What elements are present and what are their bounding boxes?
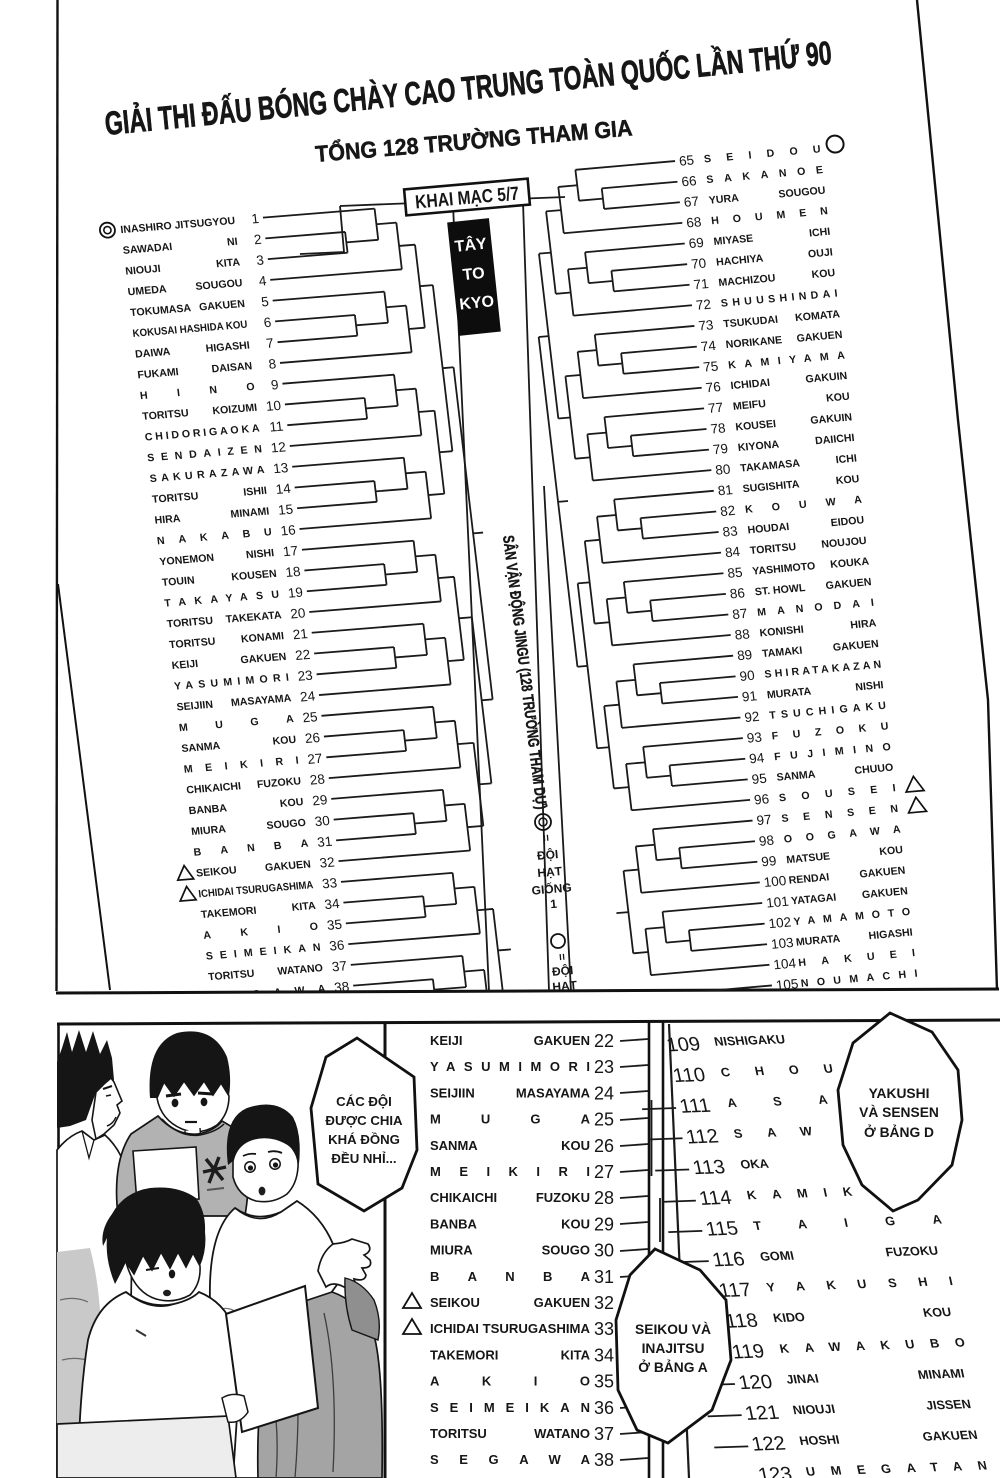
svg-text:110: 110 (671, 1064, 707, 1087)
svg-text:ICHIDAI TSURUGASHIMA: ICHIDAI TSURUGASHIMA (430, 1321, 591, 1336)
svg-text:31: 31 (316, 834, 333, 850)
svg-text:82: 82 (719, 503, 736, 519)
svg-text:GAKUEN: GAKUEN (534, 1295, 590, 1310)
svg-text:25: 25 (302, 709, 319, 725)
svg-text:HIRA: HIRA (154, 513, 182, 527)
svg-text:KIDO: KIDO (772, 1310, 807, 1325)
svg-text:37: 37 (594, 1424, 614, 1444)
svg-text:30: 30 (314, 813, 331, 829)
svg-text:11: 11 (269, 419, 285, 435)
svg-text:15: 15 (277, 502, 294, 518)
svg-text:114: 114 (697, 1187, 733, 1210)
svg-text:KOU: KOU (561, 1216, 590, 1231)
svg-text:KITA: KITA (215, 256, 241, 270)
svg-text:34: 34 (594, 1345, 614, 1365)
svg-text:35: 35 (594, 1372, 614, 1392)
svg-text:GOMI: GOMI (759, 1249, 795, 1264)
svg-text:100: 100 (763, 873, 787, 890)
svg-text:ĐỘI: ĐỘI (551, 962, 574, 979)
svg-text:79: 79 (712, 441, 729, 457)
svg-text:HIRA: HIRA (850, 617, 878, 631)
svg-text:20: 20 (289, 605, 306, 621)
svg-text:KITA: KITA (291, 900, 317, 914)
svg-text:TORITSU: TORITSU (430, 1426, 487, 1441)
svg-text:92: 92 (744, 709, 761, 725)
svg-text:KOU: KOU (922, 1305, 953, 1320)
svg-text:ISHII: ISHII (243, 485, 268, 499)
svg-text:76: 76 (705, 379, 722, 395)
svg-text:93: 93 (746, 730, 763, 746)
svg-text:38: 38 (594, 1450, 614, 1470)
svg-text:68: 68 (685, 214, 702, 230)
svg-text:12: 12 (270, 439, 287, 455)
svg-text:17: 17 (282, 543, 299, 559)
svg-text:27: 27 (594, 1162, 614, 1182)
svg-text:65: 65 (678, 152, 695, 168)
svg-text:87: 87 (731, 606, 748, 622)
svg-text:KOU: KOU (272, 734, 297, 748)
svg-text:Ở BẢNG A: Ở BẢNG A (638, 1358, 708, 1375)
svg-text:22: 22 (294, 647, 311, 663)
svg-text:KEIJI: KEIJI (171, 658, 199, 672)
svg-text:HOSHI: HOSHI (798, 1433, 841, 1448)
svg-text:81: 81 (717, 482, 734, 498)
svg-text:119: 119 (730, 1341, 766, 1364)
svg-text:Ở BẢNG D: Ở BẢNG D (864, 1123, 934, 1140)
svg-text:28: 28 (309, 771, 326, 787)
svg-text:NISHIGAKU: NISHIGAKU (713, 1033, 787, 1049)
svg-text:TO: TO (462, 265, 486, 284)
svg-text:KOU: KOU (811, 267, 836, 281)
svg-text:35: 35 (326, 917, 343, 933)
svg-text:105: 105 (775, 976, 799, 993)
svg-text:95: 95 (751, 771, 768, 787)
svg-text:80: 80 (715, 462, 732, 478)
svg-text:72: 72 (695, 297, 712, 313)
svg-text:77: 77 (707, 400, 724, 416)
svg-text:OKA: OKA (739, 1157, 770, 1172)
svg-text:113: 113 (691, 1156, 727, 1179)
svg-text:32: 32 (594, 1293, 614, 1313)
svg-text:23: 23 (297, 668, 314, 684)
svg-text:31: 31 (594, 1267, 614, 1287)
svg-text:97: 97 (756, 812, 773, 828)
svg-text:KOU: KOU (825, 391, 850, 405)
svg-text:SOUGO: SOUGO (542, 1243, 590, 1258)
svg-text:BANBA: BANBA (430, 1216, 478, 1231)
svg-text:71: 71 (693, 276, 710, 292)
svg-text:66: 66 (681, 173, 698, 189)
svg-text:101: 101 (765, 894, 789, 911)
svg-text:KOU: KOU (879, 844, 904, 858)
svg-text:29: 29 (594, 1214, 614, 1234)
svg-text:18: 18 (285, 564, 302, 580)
svg-text:70: 70 (690, 256, 707, 272)
svg-text:83: 83 (722, 523, 739, 539)
svg-text:10: 10 (265, 398, 282, 414)
svg-text:121: 121 (743, 1402, 781, 1425)
svg-text:74: 74 (700, 338, 717, 354)
svg-text:14: 14 (275, 481, 292, 497)
svg-text:JINAI: JINAI (785, 1372, 820, 1387)
svg-text:37: 37 (331, 958, 348, 974)
svg-text:ICHI: ICHI (835, 452, 858, 466)
svg-text:CÁC ĐỘI: CÁC ĐỘI (336, 1094, 392, 1109)
svg-text:KOU: KOU (561, 1138, 590, 1153)
svg-text:84: 84 (724, 544, 741, 560)
svg-text:116: 116 (710, 1249, 746, 1272)
svg-text:111: 111 (678, 1095, 713, 1118)
svg-text:27: 27 (307, 751, 324, 767)
svg-text:KHÁ ĐỒNG: KHÁ ĐỒNG (328, 1132, 400, 1147)
svg-text:JISSEN: JISSEN (925, 1397, 973, 1412)
svg-text:75: 75 (702, 359, 719, 375)
svg-text:ĐỘI: ĐỘI (536, 846, 559, 863)
svg-text:90: 90 (739, 668, 756, 684)
svg-text:=: = (539, 834, 554, 842)
svg-text:NISHI: NISHI (855, 679, 885, 693)
svg-text:91: 91 (741, 688, 758, 704)
svg-text:24: 24 (299, 688, 316, 704)
svg-text:ICHI: ICHI (808, 226, 831, 240)
svg-text:69: 69 (688, 235, 705, 251)
svg-text:SEIKOU VÀ: SEIKOU VÀ (635, 1321, 711, 1337)
svg-text:NI: NI (226, 236, 238, 249)
svg-text:32: 32 (319, 854, 336, 870)
svg-text:26: 26 (594, 1136, 614, 1156)
svg-text:36: 36 (329, 938, 346, 954)
svg-text:25: 25 (594, 1110, 614, 1130)
svg-text:KYO: KYO (459, 293, 495, 314)
svg-text:ĐỀU NHỈ...: ĐỀU NHỈ... (331, 1151, 396, 1166)
svg-text:GAKUEN: GAKUEN (534, 1033, 590, 1048)
svg-text:73: 73 (698, 317, 715, 333)
svg-text:22: 22 (594, 1031, 614, 1051)
svg-text:KEIJI: KEIJI (430, 1033, 463, 1048)
svg-text:102: 102 (768, 914, 792, 931)
svg-text:19: 19 (287, 585, 304, 601)
svg-text:21: 21 (292, 626, 309, 642)
svg-text:28: 28 (594, 1188, 614, 1208)
svg-text:WATANO: WATANO (534, 1426, 590, 1441)
svg-text:85: 85 (727, 565, 744, 581)
svg-text:GAKUEN: GAKUEN (921, 1428, 978, 1444)
svg-text:MINAMI: MINAMI (917, 1367, 966, 1382)
svg-text:34: 34 (324, 896, 341, 912)
svg-text:78: 78 (710, 420, 727, 436)
svg-text:23: 23 (594, 1057, 614, 1077)
svg-text:MASAYAMA: MASAYAMA (516, 1085, 591, 1100)
svg-text:67: 67 (683, 194, 700, 210)
svg-text:YAKUSHI: YAKUSHI (869, 1086, 930, 1101)
svg-text:TAKEMORI: TAKEMORI (430, 1347, 498, 1362)
svg-text:SEIMEIKAN: SEIMEIKAN (430, 1400, 590, 1415)
svg-text:120: 120 (737, 1371, 775, 1394)
svg-text:=: = (555, 953, 570, 961)
svg-text:30: 30 (594, 1241, 614, 1261)
svg-text:88: 88 (734, 626, 751, 642)
svg-text:KOU: KOU (279, 796, 304, 810)
svg-text:13: 13 (272, 460, 289, 476)
svg-text:33: 33 (321, 875, 338, 891)
svg-text:24: 24 (594, 1083, 614, 1103)
svg-text:SEIJIIN: SEIJIIN (430, 1085, 475, 1100)
svg-text:HẠT: HẠT (537, 864, 563, 880)
svg-text:KITA: KITA (561, 1347, 591, 1362)
svg-text:36: 36 (594, 1398, 614, 1418)
svg-text:109: 109 (664, 1034, 702, 1057)
svg-text:NIOUJI: NIOUJI (791, 1402, 836, 1417)
svg-text:OUJI: OUJI (807, 246, 833, 260)
svg-text:CHIKAICHI: CHIKAICHI (430, 1190, 497, 1205)
svg-text:FUZOKU: FUZOKU (884, 1244, 939, 1260)
svg-text:86: 86 (729, 585, 746, 601)
svg-text:33: 33 (594, 1319, 614, 1339)
svg-text:89: 89 (736, 647, 753, 663)
svg-text:26: 26 (304, 730, 321, 746)
svg-text:FUZOKU: FUZOKU (536, 1190, 590, 1205)
svg-text:MIURA: MIURA (430, 1243, 473, 1258)
svg-text:KOU: KOU (835, 473, 860, 487)
svg-text:16: 16 (280, 522, 297, 538)
svg-text:96: 96 (753, 791, 770, 807)
svg-text:103: 103 (770, 935, 794, 952)
svg-text:115: 115 (704, 1218, 740, 1241)
svg-text:29: 29 (311, 792, 328, 808)
svg-text:VÀ SENSEN: VÀ SENSEN (859, 1104, 939, 1120)
svg-text:NISHI: NISHI (245, 547, 275, 561)
svg-text:122: 122 (750, 1433, 788, 1456)
svg-text:SANMA: SANMA (430, 1138, 478, 1153)
svg-text:99: 99 (761, 853, 778, 869)
svg-text:98: 98 (758, 833, 775, 849)
svg-text:112: 112 (684, 1126, 720, 1149)
svg-text:123: 123 (756, 1464, 794, 1478)
svg-text:ĐƯỢC CHIA: ĐƯỢC CHIA (325, 1113, 403, 1128)
svg-text:94: 94 (748, 750, 765, 766)
svg-text:104: 104 (773, 955, 798, 972)
svg-text:INAJITSU: INAJITSU (642, 1341, 705, 1356)
svg-text:SEIKOU: SEIKOU (430, 1295, 480, 1310)
